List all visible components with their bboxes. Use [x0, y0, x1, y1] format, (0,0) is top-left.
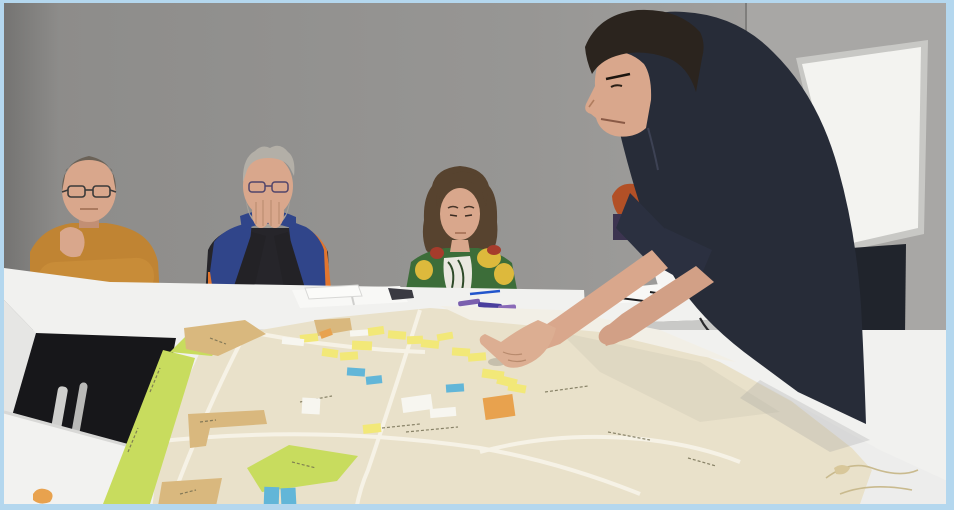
- sticky-note: [340, 351, 359, 360]
- sticky-note: [366, 375, 383, 385]
- workshop-photo: [0, 0, 954, 510]
- woman-face: [440, 188, 480, 240]
- sticky-note: [350, 329, 368, 336]
- sticky-note: [264, 487, 280, 507]
- sticky-note: [363, 423, 382, 434]
- woman-top-pattern: [430, 247, 444, 259]
- man1-hand: [60, 227, 85, 257]
- sticky-note: [483, 394, 516, 420]
- man2-hand-right: [266, 198, 284, 228]
- sticky-note: [468, 352, 487, 362]
- sticky-note: [302, 398, 321, 415]
- woman-top-pattern: [494, 263, 514, 285]
- sticky-note: [446, 383, 465, 392]
- sticky-note: [452, 347, 471, 356]
- sticky-note: [388, 330, 407, 340]
- woman-top-pattern: [444, 256, 473, 293]
- sticky-note: [352, 340, 372, 350]
- sticky-note: [407, 336, 423, 345]
- photo-canvas: [0, 0, 954, 510]
- woman-top-pattern: [415, 260, 433, 280]
- woman-neck: [450, 240, 470, 252]
- sticky-note: [347, 367, 366, 376]
- woman-top-pattern: [487, 245, 501, 255]
- phone: [305, 285, 362, 299]
